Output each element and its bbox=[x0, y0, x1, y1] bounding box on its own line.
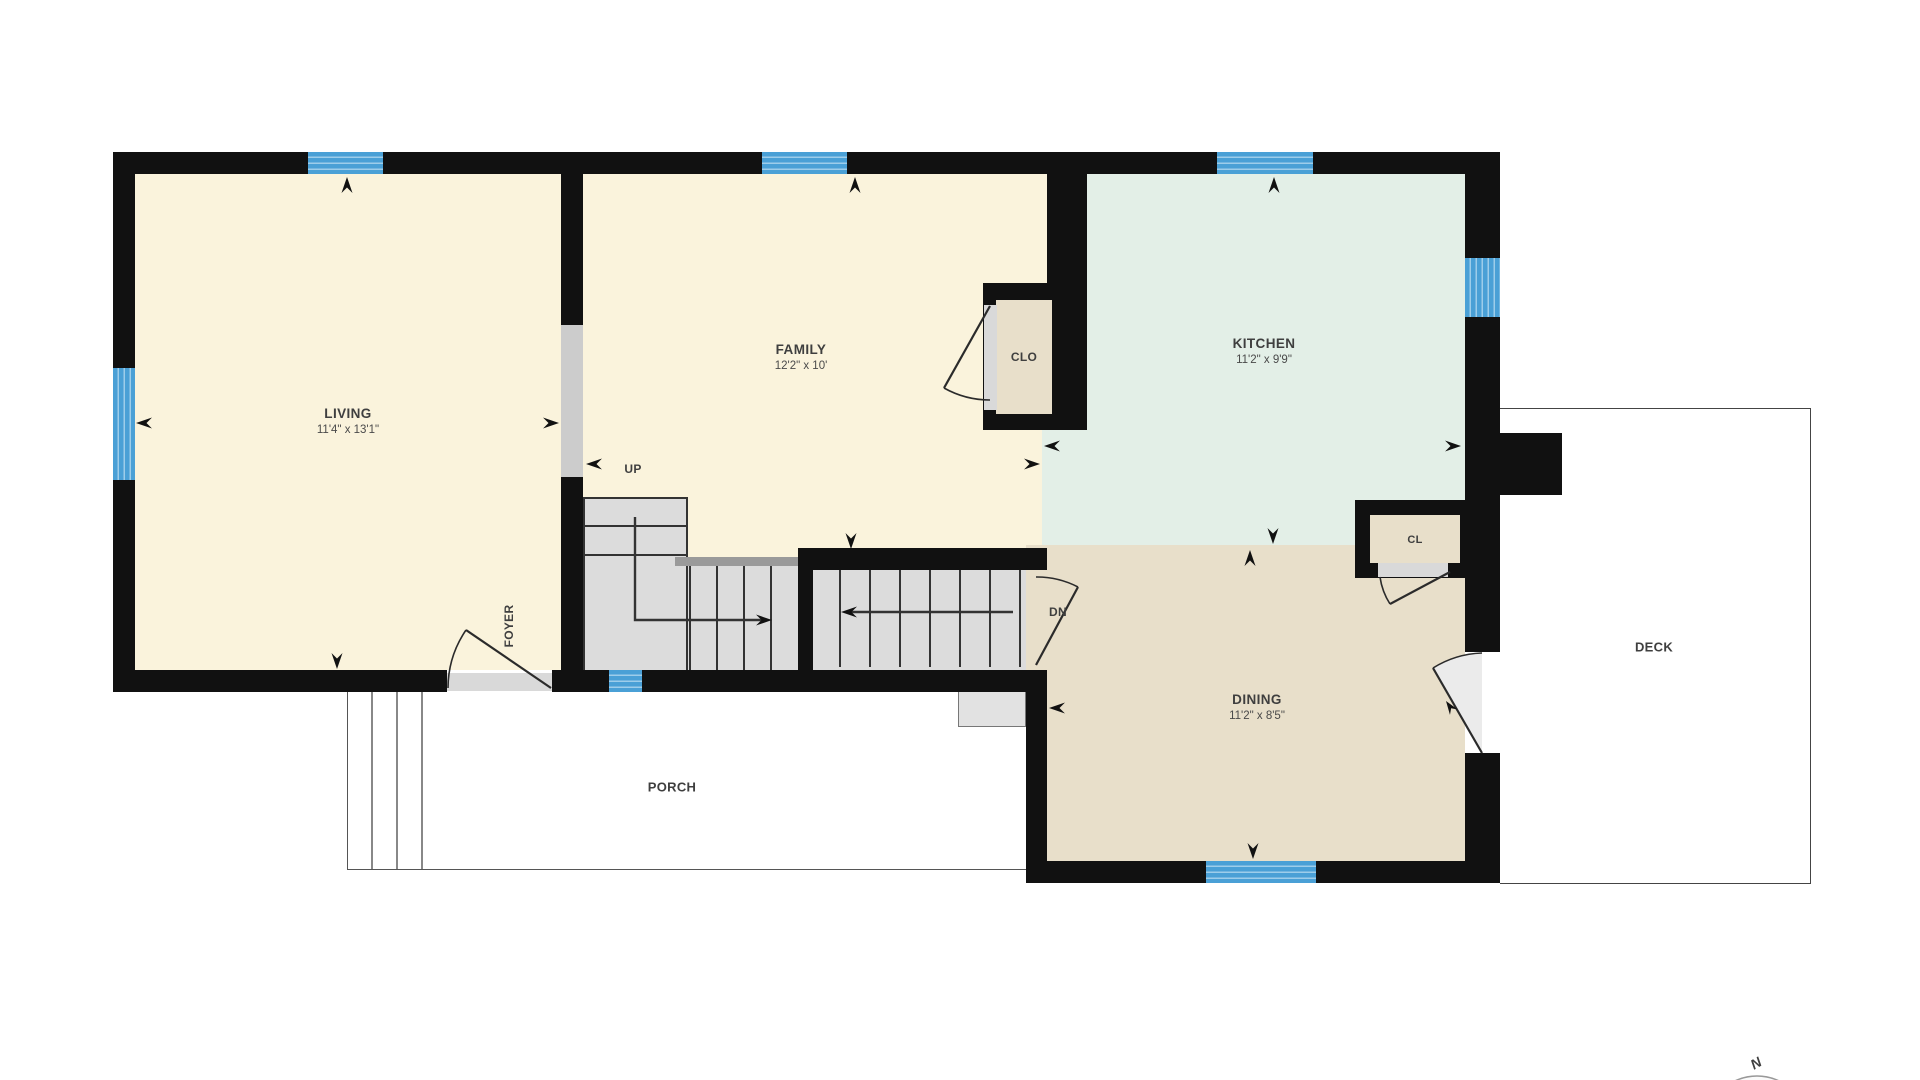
basement-door-leaf bbox=[1036, 587, 1078, 665]
dim-arrow-dining-bottom bbox=[1248, 843, 1259, 859]
dim-arrow-living-left bbox=[136, 418, 152, 429]
label-cl: CL bbox=[1407, 534, 1422, 546]
front-door-arc bbox=[448, 630, 466, 688]
dim-arrow-dining-west bbox=[1049, 703, 1065, 714]
dim-arrow-family-kitchen-1 bbox=[1044, 441, 1060, 452]
closet-cl-door-arc bbox=[1380, 577, 1390, 604]
dim-arrow-kitchen-east bbox=[1445, 441, 1461, 452]
floor-plan: LIVING 11'4" x 13'1" FAMILY 12'2" x 10' … bbox=[0, 0, 1920, 1080]
dim-arrow-living-top bbox=[342, 177, 353, 193]
closet-cl-door-leaf bbox=[1390, 572, 1450, 604]
stairs-up-treads bbox=[690, 566, 771, 670]
dim-arrow-family-kitchen-2 bbox=[1024, 459, 1040, 470]
basement-door-arc bbox=[1036, 577, 1078, 587]
dim-arrow-family-top bbox=[850, 177, 861, 193]
compass-circle bbox=[1705, 1076, 1809, 1080]
label-deck: DECK bbox=[1635, 640, 1673, 655]
plan-annotations bbox=[0, 0, 1920, 1080]
dim-arrow-opening-left bbox=[543, 418, 559, 429]
dim-arrow-living-bottom bbox=[332, 653, 343, 669]
dim-arrow-kitchen-dining-1 bbox=[1268, 528, 1279, 544]
stairs-up-direction-line bbox=[635, 517, 766, 620]
label-dn: DN bbox=[1049, 605, 1067, 619]
label-up: UP bbox=[624, 462, 641, 476]
dim-arrow-opening-right bbox=[586, 459, 602, 470]
stairs-down-treads bbox=[840, 570, 1020, 667]
closet-clo-door-arc bbox=[944, 388, 990, 400]
deck-door-swing bbox=[1433, 653, 1482, 753]
closet-clo-door-leaf bbox=[944, 306, 990, 388]
dim-arrow-family-bottom bbox=[846, 533, 857, 549]
dim-arrow-kitchen-top bbox=[1269, 177, 1280, 193]
label-foyer: FOYER bbox=[502, 605, 516, 648]
porch-steps bbox=[372, 692, 422, 869]
label-clo: CLO bbox=[1011, 350, 1037, 364]
dim-arrow-kitchen-dining-2 bbox=[1245, 550, 1256, 566]
label-porch: PORCH bbox=[648, 780, 696, 795]
